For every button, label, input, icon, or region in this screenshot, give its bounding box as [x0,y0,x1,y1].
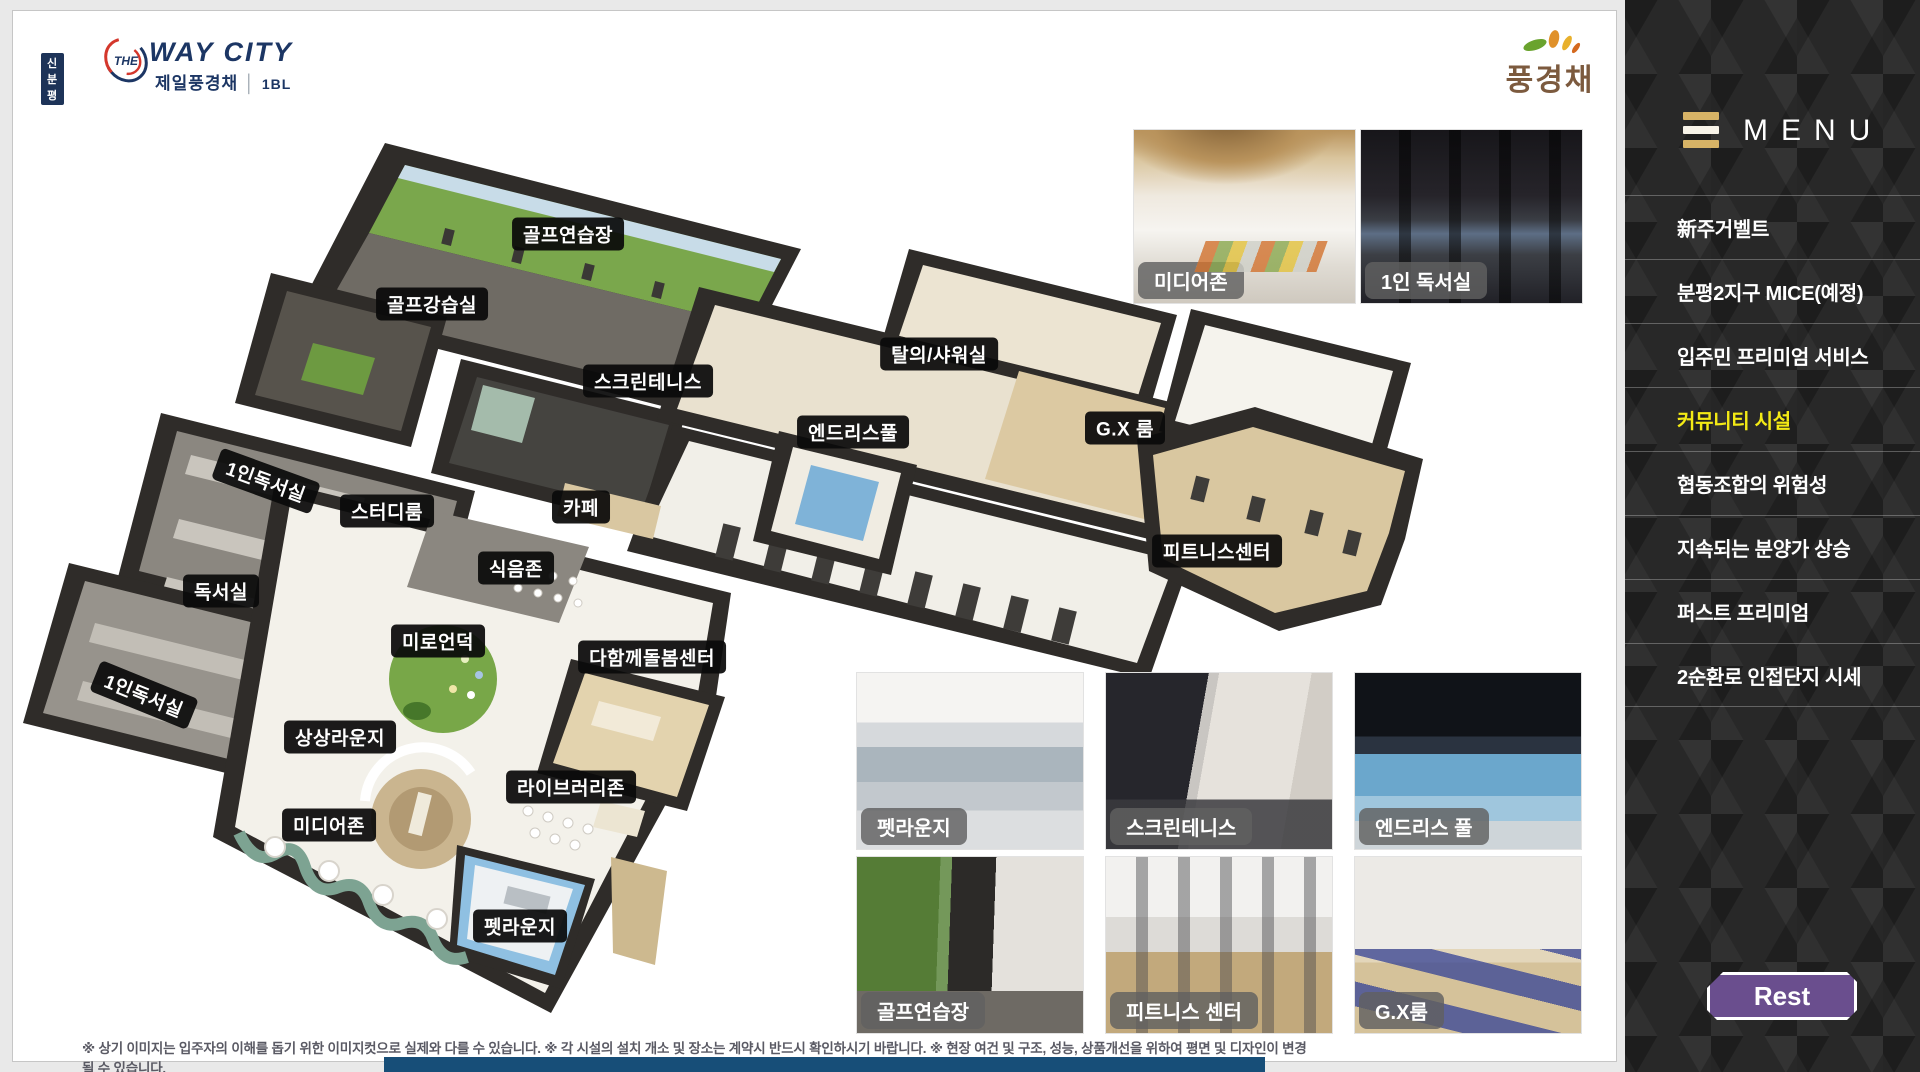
menu-item-label: 新주거벨트 [1677,213,1769,242]
photo-caption: G.X룸 [1359,992,1444,1029]
room-label: 펫라운지 [473,910,567,943]
sidebar: MENU 新주거벨트 분평2지구 MICE(예정) 입주민 프리미엄 서비스 커… [1625,0,1920,1072]
menu-item-label: 입주민 프리미엄 서비스 [1677,341,1869,370]
menu-item[interactable]: 입주민 프리미엄 서비스 [1625,323,1920,387]
menu-item-label: 분평2지구 MICE(예정) [1677,277,1863,306]
menu-item-label: 지속되는 분양가 상승 [1677,533,1850,562]
room-label: 독서실 [183,575,259,608]
room-label: 골프연습장 [512,218,624,251]
rest-button[interactable]: Rest [1707,972,1857,1020]
facility-photo: 미디어존 [1133,129,1356,304]
photo-caption: 1인 독서실 [1365,262,1487,299]
photo-caption: 스크린테니스 [1110,808,1252,845]
footer-accent-bar [384,1057,1265,1072]
room-label: 다함께돌봄센터 [578,641,726,674]
facility-photo: 골프연습장 [856,856,1084,1034]
room-label: 엔드리스풀 [797,416,909,449]
photo-caption: 피트니스 센터 [1110,992,1258,1029]
menu-item[interactable]: 지속되는 분양가 상승 [1625,515,1920,579]
menu-item-label: 협동조합의 위험성 [1677,469,1827,498]
room-label: 미로언덕 [391,625,485,658]
facility-photo: 엔드리스 풀 [1354,672,1582,850]
photo-caption: 골프연습장 [861,992,985,1029]
photo-caption: 엔드리스 풀 [1359,808,1489,845]
content-panel: 신분평 THE WAY CITY 제일풍경채│1BL [12,10,1617,1062]
kiosk-screen: 신분평 THE WAY CITY 제일풍경채│1BL [0,0,1920,1072]
room-label: 1인독서실 [89,660,199,730]
facility-photo: 피트니스 센터 [1105,856,1333,1034]
menu-item-label: 2순환로 인접단지 시세 [1677,661,1861,690]
menu-title: MENU [1743,114,1883,148]
facility-photo: 스크린테니스 [1105,672,1333,850]
gallery-bottom: 펫라운지 스크린테니스 엔드리스 풀 골프연습장 피트니스 센터 G.X룸 [856,672,1582,1034]
menu-item[interactable]: 분평2지구 MICE(예정) [1625,259,1920,323]
sidebar-menu: 新주거벨트 분평2지구 MICE(예정) 입주민 프리미엄 서비스 커뮤니티 시… [1625,195,1920,707]
hamburger-menu-icon[interactable] [1683,112,1719,150]
gallery-top: 미디어존 1인 독서실 [1133,129,1583,304]
room-label: G.X 룸 [1085,412,1165,445]
room-label: 식음존 [478,552,554,585]
menu-item[interactable]: 2순환로 인접단지 시세 [1625,643,1920,707]
menu-item[interactable]: 新주거벨트 [1625,195,1920,259]
photo-caption: 펫라운지 [861,808,967,845]
room-label: 골프강습실 [376,288,488,321]
facility-photo: G.X룸 [1354,856,1582,1034]
menu-item-label: 퍼스트 프리미엄 [1677,597,1809,626]
room-label: 피트니스센터 [1152,535,1282,568]
room-label: 상상라운지 [284,721,396,754]
room-label: 1인독서실 [211,448,321,515]
menu-header: MENU [1625,96,1920,168]
room-label: 탈의/샤워실 [880,338,998,371]
photo-caption: 미디어존 [1138,262,1244,299]
menu-item[interactable]: 퍼스트 프리미엄 [1625,579,1920,643]
room-label: 스크린테니스 [583,365,713,398]
room-label: 라이브러리존 [506,771,636,804]
menu-item[interactable]: 협동조합의 위험성 [1625,451,1920,515]
menu-item[interactable]: 커뮤니티 시설 [1625,387,1920,451]
menu-item-label: 커뮤니티 시설 [1677,405,1791,434]
room-label: 미디어존 [282,809,376,842]
room-label: 카페 [552,491,610,524]
facility-photo: 펫라운지 [856,672,1084,850]
facility-photo: 1인 독서실 [1360,129,1583,304]
room-label: 스터디룸 [340,495,434,528]
